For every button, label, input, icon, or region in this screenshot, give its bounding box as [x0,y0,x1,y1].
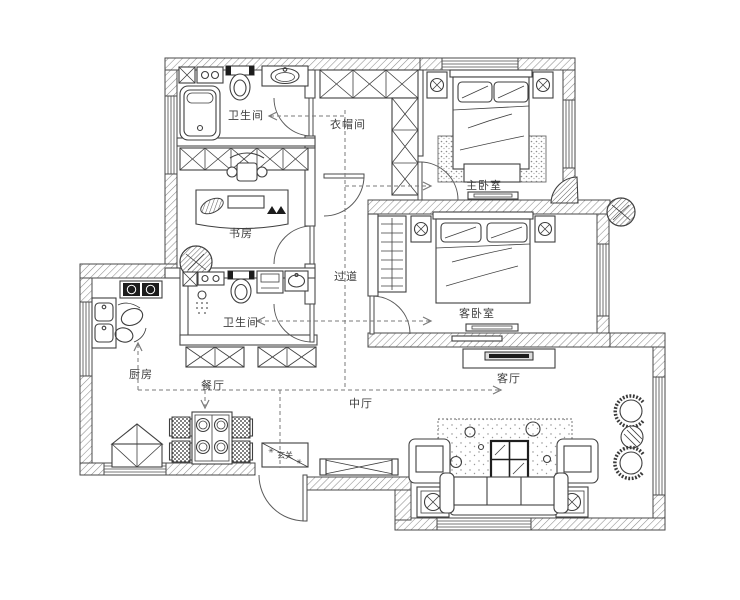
tv-bench-icon [466,324,518,331]
kettle-decor-icon [113,303,146,344]
room-label-guest-bedroom: 客卧室 [459,306,495,320]
room-label-corridor: 过道 [334,269,358,283]
study-room [180,148,308,278]
wardrobe-top-icon [320,70,418,98]
cabinet-row-icon [186,347,244,367]
room-label-living: 客厅 [497,371,521,385]
room-label-study: 书房 [229,227,253,240]
toilet-icon [228,271,254,303]
tv-cabinet-icon [463,349,555,368]
sparkle-icon: ✳ [296,458,302,466]
washbasin-icon [285,271,308,291]
nightstand-icon [533,72,553,98]
coffee-table-icon [491,441,528,478]
counter-icon [198,272,224,285]
window-living-right [653,377,665,495]
wall-shelf-icon [452,336,502,341]
wardrobe-side-icon [392,98,418,195]
plant-icon [607,198,635,226]
window-master-right [563,100,575,168]
nightstand-icon [427,72,447,98]
sparkle-icon: ✳ [268,447,274,455]
double-bed-icon [450,70,532,169]
cabinet-row-icon [258,347,316,367]
room-label-master-bedroom: 主卧室 [466,178,502,192]
window-kitchen-left [80,302,92,376]
room-label-dining: 餐厅 [201,378,225,392]
dining-chair-icon [170,417,193,438]
bay-table-icon [621,426,643,448]
floor-plan-drawing: ✳ ✳ 玄关 [0,0,740,600]
stove-icon [120,281,162,298]
window-master-top [442,58,518,70]
room-label-foyer: 玄关 [277,450,293,460]
nightstand-icon [535,216,555,242]
room-label-middle-hall: 中厅 [349,397,373,410]
washbasin-icon [262,66,308,86]
dining-room [170,412,253,464]
bay-chair-icon [615,396,643,427]
room-label-cloakroom: 衣帽间 [330,117,366,131]
wardrobe-icon [378,216,406,292]
washing-machine-icon [183,272,197,286]
sofa-icon [440,473,568,515]
bathtub-icon [180,86,220,140]
shower-icon [196,291,208,314]
room-label-bathroom-mid: 卫生间 [223,315,259,329]
vanity-cabinet-icon [257,271,283,293]
nightstand-icon [411,216,431,242]
foyer: ✳ ✳ 玄关 [262,443,398,475]
door-bathroom-top [274,98,313,136]
dining-chair-icon [230,441,253,462]
dining-chair-icon [230,417,253,438]
door-study [274,226,314,264]
shoe-cabinet-icon: ✳ ✳ 玄关 [262,443,308,467]
dining-chair-icon [170,441,193,462]
washing-machine-icon [179,67,195,83]
room-label-bathroom-top: 卫生间 [228,108,264,122]
door-cloakroom [324,174,364,216]
room-label-kitchen: 厨房 [129,368,153,381]
counter-icon [197,67,223,83]
bathroom-top [179,66,308,140]
window-bath-left [165,96,177,174]
sink-icon [92,298,116,348]
master-bedroom [427,70,578,203]
floor-plan-page: ✳ ✳ 玄关 [0,0,740,600]
toilet-icon [226,66,254,100]
door-guest-bedroom [370,296,410,334]
window-living-bottom [437,518,531,530]
double-bed-icon [433,212,533,303]
desk-icon [196,190,288,229]
window-guest-right [597,244,609,316]
corner-chair-icon [551,177,578,203]
door-entrance [259,475,307,521]
bay-chair-icon [615,448,643,479]
dining-table-icon [192,412,232,464]
corner-cabinet-icon [112,424,162,467]
tv-bench-icon [468,192,518,199]
bench-icon [320,459,398,475]
